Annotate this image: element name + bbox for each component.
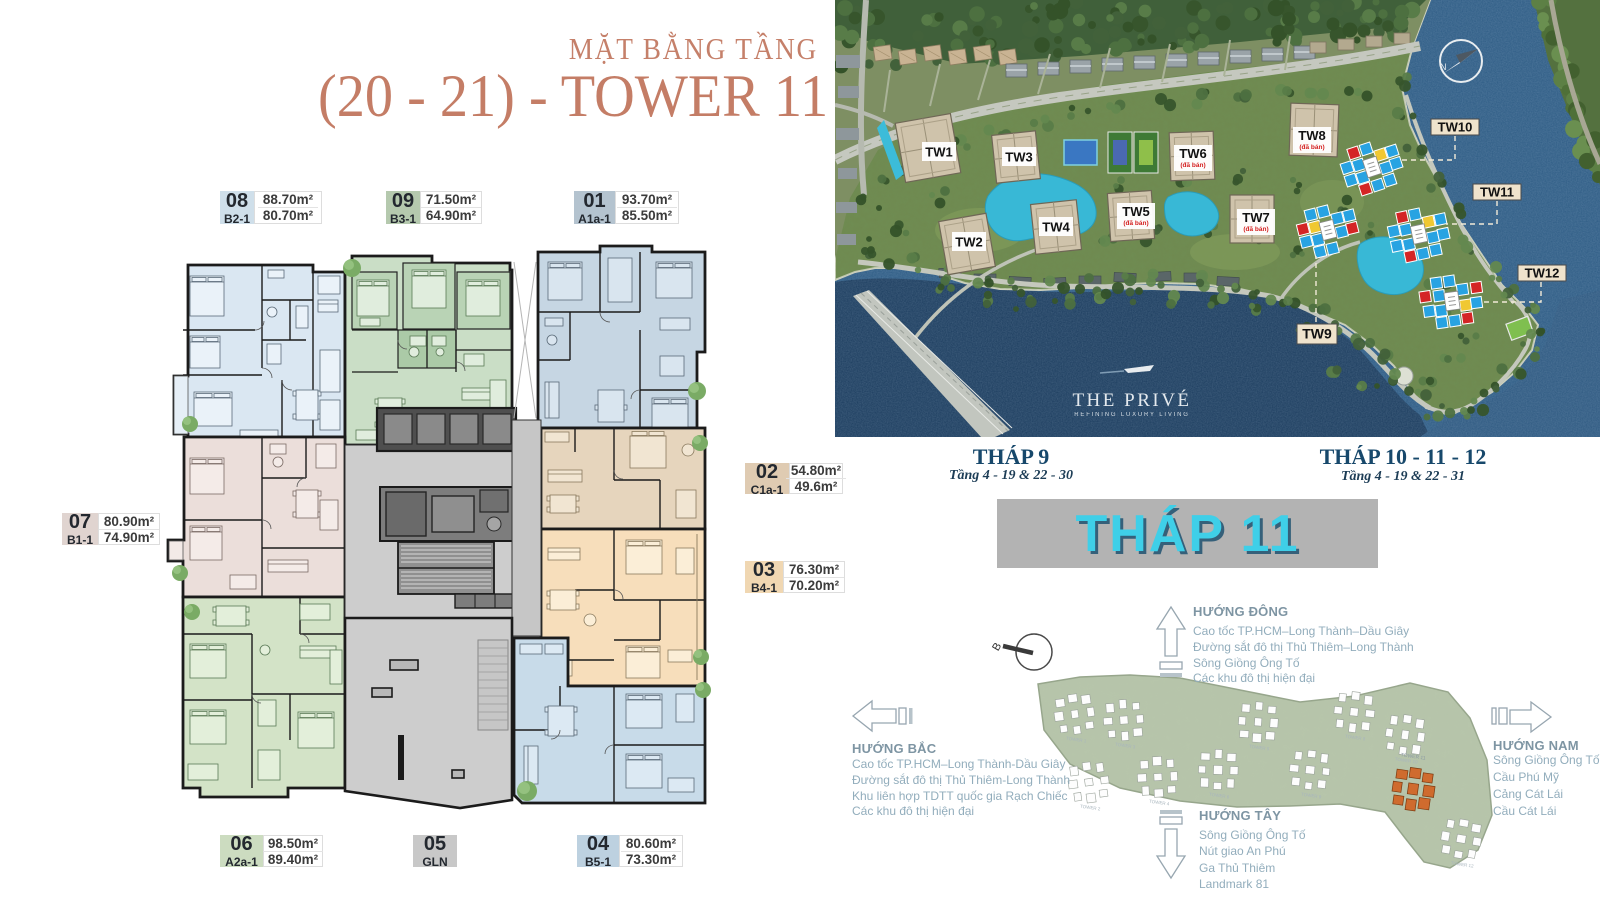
svg-text:TOWER 12: TOWER 12	[1451, 860, 1475, 868]
svg-text:TOWER 4: TOWER 4	[1149, 799, 1170, 807]
svg-text:B: B	[990, 641, 1004, 653]
svg-text:TOWER 2: TOWER 2	[1080, 804, 1101, 812]
